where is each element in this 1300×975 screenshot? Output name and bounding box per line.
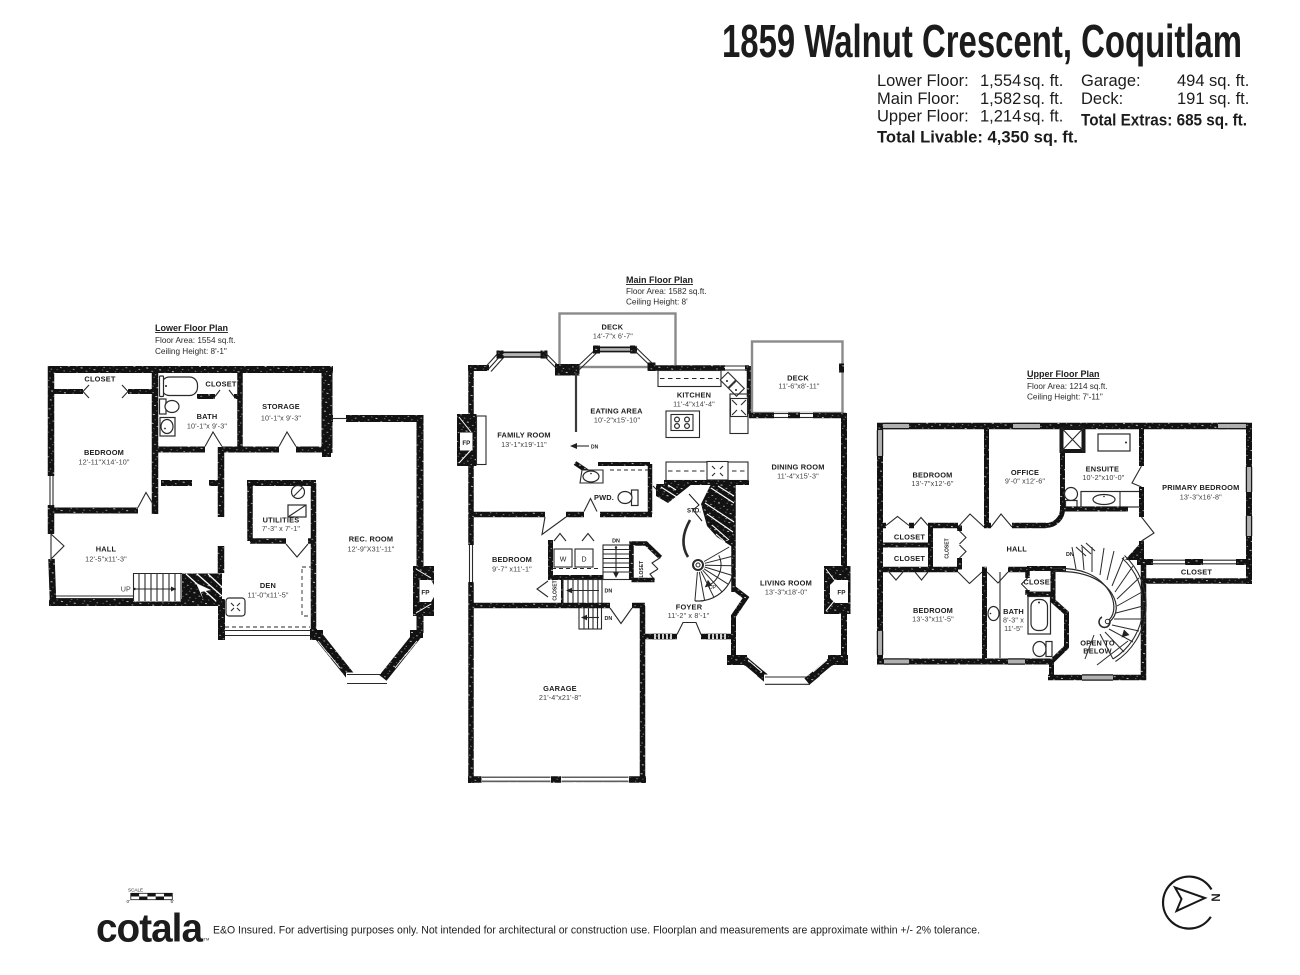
svg-text:12'-5"x11'-3": 12'-5"x11'-3"	[85, 555, 127, 564]
svg-text:Lower Floor:: Lower Floor:	[877, 72, 969, 90]
svg-text:GARAGE: GARAGE	[543, 684, 577, 693]
svg-text:sq. ft.: sq. ft.	[1209, 90, 1249, 108]
svg-text:cotala: cotala	[96, 907, 204, 951]
svg-text:11'-6"x8'-11": 11'-6"x8'-11"	[778, 382, 819, 391]
svg-text:14'-7"x 6'-7": 14'-7"x 6'-7"	[593, 332, 633, 341]
svg-text:HALL: HALL	[96, 545, 117, 554]
svg-text:11'-4"x15'-3": 11'-4"x15'-3"	[777, 472, 819, 481]
svg-text:1,582: 1,582	[980, 90, 1021, 108]
svg-text:CLOSET: CLOSET	[639, 561, 645, 581]
svg-text:CLOSET: CLOSET	[553, 580, 559, 600]
svg-text:N: N	[1208, 893, 1220, 901]
svg-text:FAMILY ROOM: FAMILY ROOM	[497, 431, 551, 440]
svg-text:sq. ft.: sq. ft.	[1209, 72, 1249, 90]
svg-text:E&O Insured. For advertising p: E&O Insured. For advertising purposes on…	[213, 925, 980, 937]
svg-text:7'-3" x 7'-1": 7'-3" x 7'-1"	[262, 524, 300, 533]
svg-text:13'-3"x16'-8": 13'-3"x16'-8"	[1180, 492, 1222, 501]
svg-text:10'-1"x 9'-3": 10'-1"x 9'-3"	[187, 422, 227, 431]
svg-text:DEN: DEN	[260, 581, 276, 590]
svg-text:STORAGE: STORAGE	[262, 402, 300, 411]
svg-text:CLOSET: CLOSET	[894, 554, 925, 563]
svg-text:CLOSET: CLOSET	[1023, 578, 1054, 587]
svg-text:21'-4"x21'-8": 21'-4"x21'-8"	[539, 693, 581, 702]
svg-text:DN: DN	[1066, 552, 1074, 558]
svg-text:0': 0'	[127, 899, 131, 904]
svg-text:Ceiling Height: 8': Ceiling Height: 8'	[626, 298, 688, 307]
svg-text:BEDROOM: BEDROOM	[492, 555, 532, 564]
svg-text:W: W	[560, 557, 567, 564]
svg-text:Garage:: Garage:	[1081, 72, 1141, 90]
svg-text:SCALE: SCALE	[128, 888, 143, 893]
svg-text:BATH: BATH	[197, 412, 218, 421]
svg-text:sq. ft.: sq. ft.	[1023, 108, 1063, 126]
svg-text:DN: DN	[605, 589, 613, 595]
svg-text:UP: UP	[121, 585, 131, 594]
svg-text:191: 191	[1177, 90, 1205, 108]
svg-text:12'-9"X31'-11": 12'-9"X31'-11"	[348, 545, 395, 554]
svg-text:DECK: DECK	[602, 323, 624, 332]
svg-text:13'-3"x18'-0": 13'-3"x18'-0"	[765, 588, 807, 597]
svg-text:12'-11"X14'-10": 12'-11"X14'-10"	[78, 458, 129, 467]
svg-text:D: D	[581, 557, 586, 564]
svg-text:EATING AREA: EATING AREA	[590, 406, 643, 415]
svg-text:Main Floor:: Main Floor:	[877, 90, 960, 108]
svg-text:11'-0"x11'-5": 11'-0"x11'-5"	[247, 591, 288, 600]
svg-text:BEDROOM: BEDROOM	[84, 448, 124, 457]
svg-text:FP: FP	[837, 590, 846, 597]
svg-text:CLOSET: CLOSET	[1181, 568, 1212, 577]
svg-text:Ceiling Height: 7'-11": Ceiling Height: 7'-11"	[1027, 393, 1103, 402]
svg-text:Main Floor Plan: Main Floor Plan	[626, 275, 693, 285]
svg-text:13'-3"x11'-5": 13'-3"x11'-5"	[912, 615, 954, 624]
svg-text:CLOSET: CLOSET	[945, 538, 951, 558]
svg-text:DINING ROOM: DINING ROOM	[771, 463, 824, 472]
svg-text:10'-2"x10'-0": 10'-2"x10'-0"	[1082, 473, 1124, 482]
svg-text:HALL: HALL	[1006, 544, 1027, 553]
svg-text:DN: DN	[605, 616, 613, 622]
svg-text:LIVING ROOM: LIVING ROOM	[760, 579, 812, 588]
svg-text:KITCHEN: KITCHEN	[677, 391, 711, 400]
svg-text:FP: FP	[421, 590, 430, 597]
svg-text:DN: DN	[591, 445, 599, 451]
svg-text:STO.: STO.	[687, 509, 701, 515]
svg-text:Total Livable: 4,350 sq. ft.: Total Livable: 4,350 sq. ft.	[877, 129, 1078, 147]
svg-text:11'-5": 11'-5"	[1004, 624, 1023, 633]
svg-text:1,554: 1,554	[980, 72, 1021, 90]
svg-text:FP: FP	[462, 440, 470, 447]
svg-text:10'-2"x15'-10": 10'-2"x15'-10"	[594, 415, 641, 424]
svg-text:13'-1"x19'-11": 13'-1"x19'-11"	[501, 440, 547, 449]
svg-text:Ceiling Height: 8'-1": Ceiling Height: 8'-1"	[155, 347, 227, 356]
svg-text:11'-4"x14'-4": 11'-4"x14'-4"	[673, 400, 715, 409]
svg-text:CLOSET: CLOSET	[84, 375, 115, 384]
svg-text:494: 494	[1177, 72, 1205, 90]
svg-text:PRIMARY BEDROOM: PRIMARY BEDROOM	[1162, 483, 1239, 492]
svg-text:1859 Walnut Crescent, Coquitla: 1859 Walnut Crescent, Coquitlam	[722, 15, 1242, 67]
svg-text:Lower Floor Plan: Lower Floor Plan	[155, 323, 228, 333]
svg-text:1,214: 1,214	[980, 108, 1021, 126]
svg-text:TM: TM	[204, 937, 210, 942]
svg-text:PWD.: PWD.	[594, 493, 614, 502]
svg-text:sq. ft.: sq. ft.	[1023, 90, 1063, 108]
svg-text:CLOSET: CLOSET	[205, 380, 236, 389]
svg-text:10'-1"x 9'-3": 10'-1"x 9'-3"	[261, 414, 301, 423]
svg-text:sq. ft.: sq. ft.	[1023, 72, 1063, 90]
svg-text:Floor Area: 1582 sq.ft.: Floor Area: 1582 sq.ft.	[626, 287, 707, 296]
svg-text:Total Extras: 685 sq. ft.: Total Extras: 685 sq. ft.	[1081, 112, 1247, 130]
svg-text:Upper Floor:: Upper Floor:	[877, 108, 969, 126]
svg-text:Floor Area: 1214 sq.ft.: Floor Area: 1214 sq.ft.	[1027, 382, 1108, 391]
svg-text:CLOSET: CLOSET	[894, 533, 925, 542]
svg-text:Upper Floor Plan: Upper Floor Plan	[1027, 369, 1100, 379]
svg-text:DN: DN	[612, 539, 620, 545]
svg-text:5': 5'	[171, 899, 175, 904]
svg-text:9'-0" x12'-6": 9'-0" x12'-6"	[1005, 476, 1045, 485]
svg-text:Deck:: Deck:	[1081, 90, 1123, 108]
svg-text:Floor Area: 1554 sq.ft.: Floor Area: 1554 sq.ft.	[155, 336, 236, 345]
svg-text:REC. ROOM: REC. ROOM	[349, 535, 394, 544]
svg-text:11'-2" x 8'-1": 11'-2" x 8'-1"	[668, 611, 710, 620]
svg-text:9'-7" x11'-1": 9'-7" x11'-1"	[492, 565, 532, 574]
svg-text:13'-7"x12'-6": 13'-7"x12'-6"	[911, 479, 953, 488]
